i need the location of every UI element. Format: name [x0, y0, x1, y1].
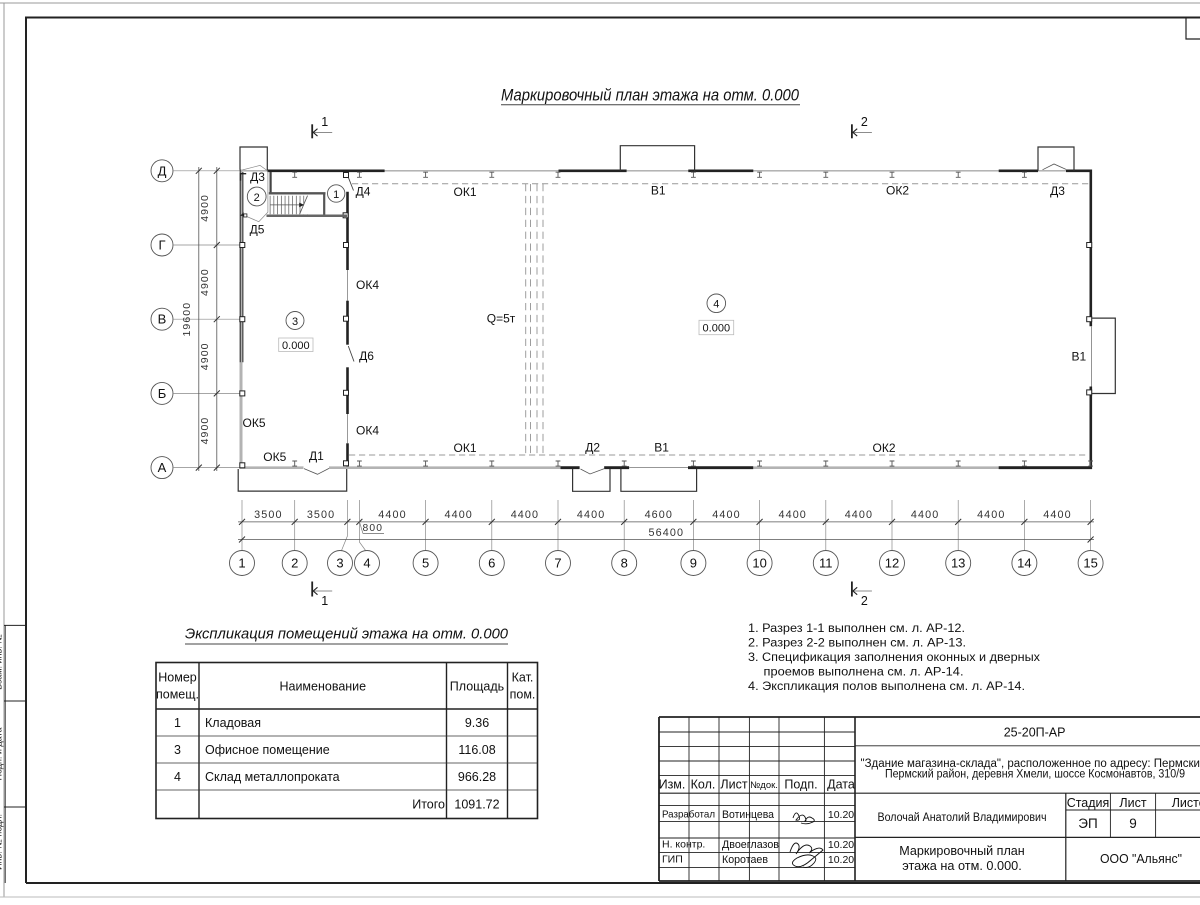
svg-text:3: 3 — [292, 316, 298, 328]
svg-text:4900: 4900 — [199, 342, 211, 370]
svg-text:ОК5: ОК5 — [263, 450, 286, 464]
svg-text:Площадь: Площадь — [450, 680, 504, 694]
svg-text:Коротаев: Коротаев — [722, 854, 768, 866]
svg-text:Номер: Номер — [158, 671, 197, 685]
svg-text:1: 1 — [321, 115, 328, 129]
svg-text:Подп.: Подп. — [784, 778, 817, 792]
svg-text:1: 1 — [333, 189, 339, 201]
svg-text:Офисное помещение: Офисное помещение — [205, 743, 330, 757]
svg-text:4900: 4900 — [199, 194, 211, 222]
svg-text:7: 7 — [554, 556, 561, 571]
svg-text:Д: Д — [158, 163, 167, 178]
svg-text:56400: 56400 — [649, 527, 685, 539]
svg-text:2: 2 — [861, 115, 868, 129]
svg-text:2. Разрез 2-2 выполнен см. л.: 2. Разрез 2-2 выполнен см. л. АР-13. — [748, 636, 966, 650]
svg-text:800: 800 — [363, 523, 383, 534]
svg-text:№док.: №док. — [750, 780, 778, 791]
svg-text:4400: 4400 — [911, 509, 939, 521]
svg-text:В1: В1 — [654, 441, 669, 455]
svg-text:3: 3 — [336, 556, 343, 571]
svg-text:Дата: Дата — [827, 778, 855, 792]
svg-text:3: 3 — [174, 743, 181, 757]
svg-text:Маркировочный план: Маркировочный план — [899, 843, 1025, 858]
svg-text:Д3: Д3 — [1050, 184, 1065, 198]
svg-text:Разработал: Разработал — [662, 809, 715, 821]
svg-text:0.000: 0.000 — [703, 323, 731, 335]
svg-text:4900: 4900 — [199, 417, 211, 445]
svg-text:Д6: Д6 — [359, 349, 374, 363]
svg-text:пом.: пом. — [510, 688, 536, 702]
svg-text:Изм.: Изм. — [659, 778, 686, 792]
svg-text:Листов: Листов — [1172, 796, 1200, 810]
svg-text:4400: 4400 — [444, 509, 472, 521]
svg-text:ГИП: ГИП — [662, 853, 683, 865]
svg-text:Б: Б — [158, 386, 167, 401]
svg-text:ОК1: ОК1 — [454, 185, 477, 199]
svg-text:12: 12 — [885, 556, 899, 571]
svg-text:Лист: Лист — [720, 778, 747, 792]
svg-text:2: 2 — [291, 556, 298, 571]
svg-text:этажа на отм. 0.000.: этажа на отм. 0.000. — [902, 858, 1022, 873]
svg-text:Склад металлопроката: Склад металлопроката — [205, 770, 340, 784]
svg-text:6: 6 — [488, 556, 495, 571]
svg-text:ООО "Альянс": ООО "Альянс" — [1100, 851, 1182, 866]
svg-text:4600: 4600 — [645, 509, 673, 521]
svg-text:Вотинцева: Вотинцева — [722, 809, 775, 821]
svg-text:1: 1 — [238, 556, 245, 571]
svg-text:4400: 4400 — [577, 509, 605, 521]
svg-text:3500: 3500 — [254, 509, 282, 521]
svg-text:4: 4 — [363, 556, 370, 571]
svg-text:Q=5т: Q=5т — [487, 312, 516, 326]
svg-text:1091.72: 1091.72 — [454, 797, 499, 811]
svg-text:1: 1 — [321, 594, 328, 608]
svg-text:Волочай Анатолий Владимирович: Волочай Анатолий Владимирович — [878, 812, 1047, 824]
svg-text:Кладовая: Кладовая — [205, 716, 261, 730]
svg-text:В1: В1 — [651, 183, 666, 197]
svg-text:Стадия: Стадия — [1067, 796, 1110, 810]
svg-text:4400: 4400 — [778, 509, 806, 521]
svg-text:4400: 4400 — [845, 509, 873, 521]
svg-text:ОК1: ОК1 — [454, 441, 477, 455]
svg-text:2: 2 — [254, 192, 260, 204]
svg-text:15: 15 — [1083, 556, 1097, 571]
svg-text:Д3: Д3 — [250, 170, 265, 184]
svg-text:4900: 4900 — [199, 268, 211, 296]
svg-text:Взам. инв. №: Взам. инв. № — [0, 634, 4, 690]
svg-text:Наименование: Наименование — [279, 680, 366, 694]
svg-text:помещ.: помещ. — [156, 688, 199, 702]
svg-text:4400: 4400 — [511, 509, 539, 521]
svg-text:9: 9 — [1129, 816, 1137, 831]
svg-text:4400: 4400 — [977, 509, 1005, 521]
svg-text:10: 10 — [752, 556, 766, 571]
svg-text:Кат.: Кат. — [512, 671, 534, 685]
svg-text:4: 4 — [713, 299, 719, 311]
svg-text:10.20: 10.20 — [828, 809, 854, 821]
svg-text:1: 1 — [174, 716, 181, 730]
svg-text:116.08: 116.08 — [458, 743, 495, 757]
svg-text:2: 2 — [861, 594, 868, 608]
svg-text:3500: 3500 — [307, 509, 335, 521]
svg-text:19600: 19600 — [181, 302, 193, 337]
svg-text:ОК2: ОК2 — [886, 184, 909, 198]
svg-text:А: А — [158, 460, 167, 475]
svg-text:Д2: Д2 — [585, 441, 600, 455]
svg-text:25-20П-АР: 25-20П-АР — [1004, 725, 1066, 739]
svg-text:В1: В1 — [1071, 349, 1086, 363]
svg-text:Экспликация помещений этажа на: Экспликация помещений этажа на отм. 0.00… — [185, 626, 509, 643]
svg-text:Д5: Д5 — [250, 223, 265, 237]
svg-text:4: 4 — [174, 770, 181, 784]
svg-text:11: 11 — [819, 556, 833, 571]
svg-text:Пермский район, деревня Хмели,: Пермский район, деревня Хмели, шоссе Кос… — [885, 769, 1185, 781]
svg-text:Двоеглазов: Двоеглазов — [722, 839, 779, 851]
svg-text:Д4: Д4 — [356, 185, 371, 199]
svg-text:ОК4: ОК4 — [356, 278, 379, 292]
svg-text:ЭП: ЭП — [1078, 816, 1097, 831]
svg-text:4. Экспликация полов выполнена: 4. Экспликация полов выполнена см. л. АР… — [748, 679, 1025, 693]
svg-text:Кол.: Кол. — [691, 778, 716, 792]
svg-text:966.28: 966.28 — [458, 770, 496, 784]
svg-text:4400: 4400 — [378, 509, 406, 521]
svg-text:Итого: Итого — [412, 797, 445, 811]
svg-text:14: 14 — [1017, 556, 1031, 571]
svg-text:9.36: 9.36 — [465, 716, 489, 730]
svg-text:Маркировочный план этажа на от: Маркировочный план этажа на отм. 0.000 — [501, 87, 800, 105]
svg-text:ОК2: ОК2 — [873, 441, 896, 455]
svg-text:13: 13 — [951, 556, 965, 571]
svg-text:9: 9 — [690, 556, 697, 571]
svg-text:ОК4: ОК4 — [356, 424, 379, 438]
svg-text:Подп. и дата: Подп. и дата — [0, 727, 4, 780]
svg-text:Д1: Д1 — [309, 449, 324, 463]
svg-text:3. Спецификация заполнения око: 3. Спецификация заполнения оконных и две… — [748, 650, 1041, 664]
svg-text:10.20: 10.20 — [828, 839, 854, 851]
svg-text:0.000: 0.000 — [282, 340, 310, 352]
svg-text:8: 8 — [621, 556, 628, 571]
svg-text:1. Разрез 1-1 выполнен см. л.: 1. Разрез 1-1 выполнен см. л. АР-12. — [748, 621, 965, 635]
svg-text:4400: 4400 — [1043, 509, 1071, 521]
svg-text:10.20: 10.20 — [828, 854, 854, 866]
svg-text:5: 5 — [422, 556, 429, 571]
svg-text:проемов выполнена см. л. АР-14: проемов выполнена см. л. АР-14. — [764, 665, 964, 679]
svg-text:Инв. № подл.: Инв. № подл. — [0, 814, 4, 870]
svg-text:ОК5: ОК5 — [243, 416, 266, 430]
svg-text:Г: Г — [158, 238, 165, 253]
svg-text:В: В — [158, 312, 167, 327]
svg-text:Лист: Лист — [1119, 796, 1146, 810]
svg-text:Н. контр.: Н. контр. — [662, 839, 705, 851]
svg-text:4400: 4400 — [712, 509, 740, 521]
